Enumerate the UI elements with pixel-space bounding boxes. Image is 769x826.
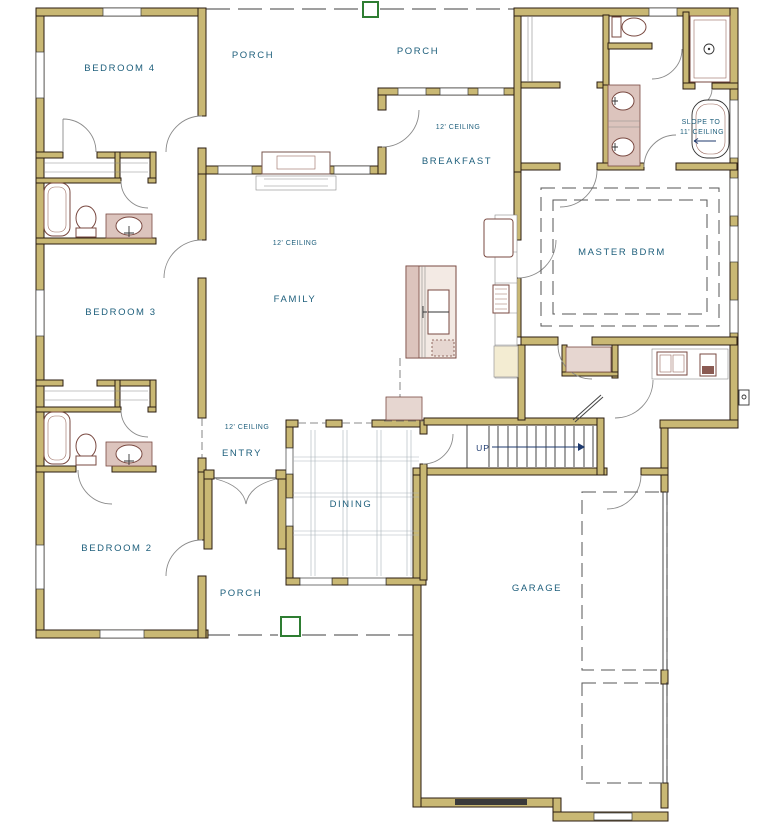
porch-post-icon	[363, 2, 378, 17]
kitchen-island-sink-icon	[406, 266, 456, 358]
label-ceiling-entry: 12' CEILING	[225, 424, 270, 431]
buffet-cabinet	[386, 397, 422, 420]
floor-plan: BEDROOM 4 PORCH PORCH 12' CEILING BREAKF…	[0, 0, 769, 826]
label-entry: ENTRY	[222, 448, 262, 459]
range-icon	[493, 285, 509, 313]
electrical-panel-icon	[739, 390, 749, 405]
label-slope-1: SLOPE TO	[682, 119, 721, 126]
fireplace-icon	[256, 152, 336, 190]
shower-icon	[690, 16, 730, 82]
laundry-sink-counter-icon	[657, 352, 687, 375]
label-ceiling-family: 12' CEILING	[273, 240, 318, 247]
label-breakfast: BREAKFAST	[422, 156, 492, 167]
porch-post-icon	[281, 617, 300, 636]
label-bedroom2: BEDROOM 2	[81, 543, 152, 554]
toilet-icon	[612, 17, 646, 37]
vanity-sink-icon	[106, 442, 152, 466]
label-stairs-up: UP	[476, 443, 490, 453]
label-dining: DINING	[330, 499, 373, 510]
entry-double-door-icon	[214, 478, 276, 504]
appliance-icon	[700, 354, 716, 376]
label-bedroom3: BEDROOM 3	[85, 307, 156, 318]
label-porch-top-left: PORCH	[232, 50, 274, 61]
label-garage: GARAGE	[512, 583, 562, 594]
label-slope-2: 11' CEILING	[680, 129, 724, 136]
pantry-cabinet-icon	[494, 346, 518, 377]
mud-closet	[566, 347, 611, 372]
garage-service-door	[594, 813, 632, 820]
toilet-icon	[76, 206, 96, 237]
refrigerator-icon	[484, 219, 513, 257]
garage-door-track-icon	[582, 492, 667, 783]
hall-bath-2	[44, 412, 152, 466]
label-porch-bottom: PORCH	[220, 588, 262, 599]
garage-window	[455, 799, 527, 805]
label-family: FAMILY	[274, 294, 317, 305]
hall-bath-1	[44, 183, 152, 238]
label-bedroom4: BEDROOM 4	[84, 63, 155, 74]
toilet-icon	[76, 434, 96, 465]
porch-roof-lines	[206, 2, 514, 636]
double-vanity-icon	[608, 85, 640, 166]
label-ceiling-breakfast: 12' CEILING	[436, 124, 481, 131]
label-porch-top-right: PORCH	[397, 46, 439, 57]
label-master-bedroom: MASTER BDRM	[578, 247, 666, 258]
vanity-sink-icon	[106, 214, 152, 238]
